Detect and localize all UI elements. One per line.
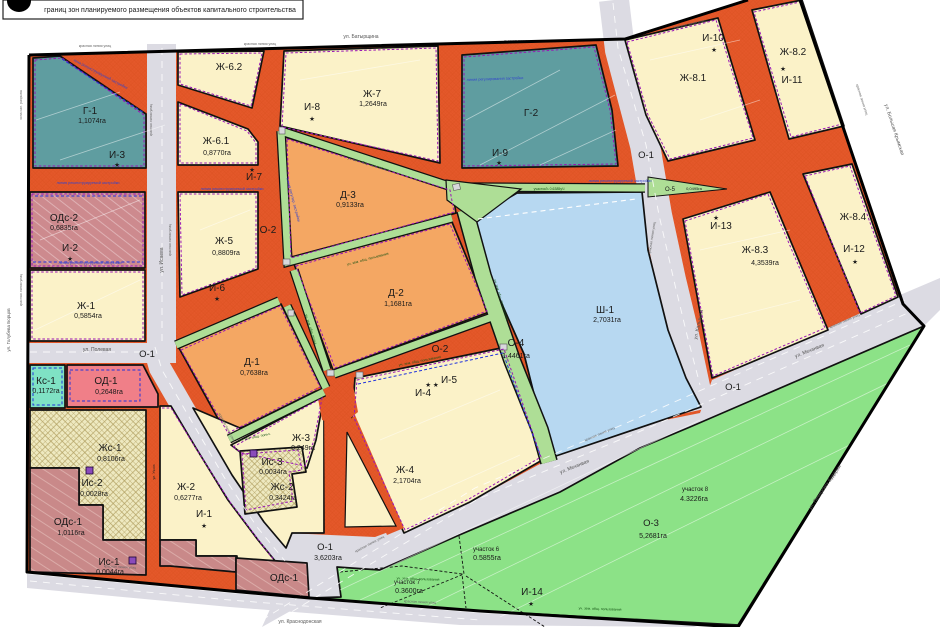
svg-text:И-1: И-1 [196, 509, 213, 520]
svg-text:красная линия улиц: красная линия улиц [168, 224, 172, 256]
svg-text:2,1704га: 2,1704га [393, 478, 421, 485]
svg-text:Жс-2: Жс-2 [270, 482, 294, 493]
svg-text:1,1074га: 1,1074га [78, 118, 106, 125]
svg-text:Ж-8.4: Ж-8.4 [840, 212, 867, 223]
svg-text:3,6203га: 3,6203га [314, 555, 342, 562]
svg-text:линия реконструируемой застрой: линия реконструируемой застройки [56, 181, 119, 185]
svg-text:Ж-5: Ж-5 [215, 236, 234, 247]
svg-text:участок 7: участок 7 [394, 580, 421, 586]
svg-text:Жс-1: Жс-1 [98, 443, 122, 454]
svg-text:★: ★ [780, 65, 786, 73]
svg-text:И-5: И-5 [441, 375, 458, 386]
svg-text:красная линия улиц: красная линия улиц [244, 42, 276, 46]
svg-text:0,5854га: 0,5854га [74, 313, 102, 320]
svg-text:★: ★ [214, 295, 220, 303]
svg-text:0,249га: 0,249га [291, 445, 315, 452]
svg-text:★: ★ [201, 522, 207, 530]
svg-text:И-2: И-2 [62, 243, 79, 254]
svg-text:красная линия улиц: красная линия улиц [79, 44, 111, 48]
svg-text:границ зон планируемого размещ: границ зон планируемого размещения объек… [44, 6, 296, 14]
svg-text:Д-1: Д-1 [244, 357, 260, 368]
svg-text:1,1681га: 1,1681га [384, 301, 412, 308]
svg-text:О-2: О-2 [260, 225, 277, 236]
svg-text:0,0028га: 0,0028га [80, 491, 108, 498]
svg-text:Ж-3: Ж-3 [292, 433, 311, 444]
svg-text:★: ★ [852, 258, 858, 266]
svg-text:И-6: И-6 [209, 283, 226, 294]
svg-text:участокЪ 0.6385уЧ: участокЪ 0.6385уЧ [534, 187, 566, 191]
svg-text:0.3600га: 0.3600га [395, 588, 423, 595]
svg-text:Ж-2: Ж-2 [177, 482, 196, 493]
svg-text:0,8106га: 0,8106га [97, 456, 125, 463]
svg-text:линия реконструируемой застрой: линия реконструируемой застройки [588, 179, 651, 183]
svg-text:★: ★ [249, 166, 255, 174]
svg-text:0,6835га: 0,6835га [50, 225, 78, 232]
svg-text:ул. Полевая: ул. Полевая [83, 347, 111, 353]
svg-text:О-4: О-4 [508, 338, 525, 349]
svg-text:0,8809га: 0,8809га [212, 250, 240, 257]
svg-text:Ш-1: Ш-1 [596, 305, 614, 316]
svg-text:★: ★ [713, 214, 719, 222]
svg-text:0,8770га: 0,8770га [203, 150, 231, 157]
svg-text:И-12: И-12 [843, 244, 865, 255]
svg-text:5,2681га: 5,2681га [639, 533, 667, 540]
svg-text:2,7031га: 2,7031га [593, 317, 621, 324]
svg-text:Ис-2: Ис-2 [81, 478, 103, 489]
svg-text:0,1172га: 0,1172га [32, 388, 59, 395]
svg-text:ул. Исаева: ул. Исаева [159, 247, 165, 272]
svg-text:ОДс-2: ОДс-2 [50, 213, 79, 224]
svg-text:Ж-6.1: Ж-6.1 [203, 136, 230, 147]
svg-text:★ ★: ★ ★ [425, 381, 439, 389]
svg-text:★: ★ [528, 600, 534, 608]
svg-text:ОД-1: ОД-1 [94, 376, 118, 387]
svg-text:Ис-3: Ис-3 [261, 457, 283, 468]
svg-text:Кс-1: Кс-1 [36, 376, 56, 387]
svg-text:И-3: И-3 [109, 150, 126, 161]
svg-text:О-1: О-1 [725, 382, 741, 393]
svg-text:★: ★ [496, 159, 502, 167]
svg-text:4,3539га: 4,3539га [751, 260, 779, 267]
svg-text:0,0044га: 0,0044га [96, 569, 124, 576]
svg-text:0,3424га: 0,3424га [269, 495, 297, 502]
svg-text:линия реконструируемой застрой: линия реконструируемой застройки [200, 187, 263, 191]
svg-text:И-11: И-11 [782, 75, 803, 86]
svg-text:1,2649га: 1,2649га [359, 101, 387, 108]
svg-text:участок 8: участок 8 [682, 487, 709, 493]
svg-text:Ж-1: Ж-1 [77, 301, 96, 312]
svg-text:И-14: И-14 [521, 587, 543, 598]
svg-text:О-1: О-1 [638, 150, 654, 161]
svg-text:О-1: О-1 [317, 542, 333, 553]
svg-text:И-9: И-9 [492, 148, 509, 159]
svg-text:★: ★ [711, 46, 717, 54]
svg-text:ОДс-1: ОДс-1 [54, 517, 83, 528]
svg-text:★: ★ [114, 161, 120, 169]
svg-text:1,0116га: 1,0116га [57, 530, 84, 537]
svg-text:ул. Краснодонская: ул. Краснодонская [278, 619, 322, 625]
svg-text:Ж-8.1: Ж-8.1 [680, 73, 707, 84]
svg-text:Ж-8.3: Ж-8.3 [742, 245, 769, 256]
svg-text:0,0034га: 0,0034га [259, 469, 287, 476]
svg-text:ул. Батырщина: ул. Батырщина [343, 34, 378, 40]
svg-text:красная линия улиц: красная линия улиц [19, 274, 23, 306]
svg-text:И-4: И-4 [415, 388, 432, 399]
svg-text:О-3: О-3 [643, 518, 659, 529]
svg-text:участок 6: участок 6 [473, 547, 500, 553]
svg-text:О-1: О-1 [139, 349, 155, 360]
svg-text:Ж-4: Ж-4 [396, 465, 415, 476]
svg-text:0,7638га: 0,7638га [240, 370, 268, 377]
svg-text:★: ★ [309, 115, 315, 123]
svg-text:О-2: О-2 [432, 344, 449, 355]
svg-text:0,6277га: 0,6277га [174, 495, 202, 502]
svg-text:ул. Голубева Борцов: ул. Голубева Борцов [6, 308, 11, 352]
svg-text:Г-1: Г-1 [83, 106, 98, 117]
svg-text:ул. Учхоз: ул. Учхоз [152, 464, 156, 479]
svg-text:★: ★ [67, 255, 73, 263]
svg-text:И-10: И-10 [702, 33, 724, 44]
svg-text:Ж-8.2: Ж-8.2 [780, 47, 807, 58]
svg-text:0,2648га: 0,2648га [95, 389, 123, 396]
svg-text:Д-2: Д-2 [388, 288, 404, 299]
svg-text:Ж-7: Ж-7 [363, 89, 382, 100]
svg-text:Ж-6.2: Ж-6.2 [216, 62, 243, 73]
svg-text:И-13: И-13 [710, 221, 732, 232]
svg-text:Г-2: Г-2 [524, 108, 539, 119]
svg-text:1,4461га: 1,4461га [502, 353, 530, 360]
svg-text:0,9133га: 0,9133га [336, 202, 364, 209]
svg-text:4.3226га: 4.3226га [680, 496, 708, 503]
svg-text:зона сан. разрыва: зона сан. разрыва [19, 90, 23, 120]
svg-text:О-5: О-5 [665, 187, 676, 193]
svg-text:красная линия улиц: красная линия улиц [149, 104, 153, 136]
svg-text:Д-3: Д-3 [340, 190, 356, 201]
svg-text:И-8: И-8 [304, 102, 321, 113]
svg-text:0.5855га: 0.5855га [473, 555, 501, 562]
svg-text:0,0495га: 0,0495га [686, 186, 703, 191]
svg-text:ОДс-1: ОДс-1 [270, 573, 299, 584]
svg-text:Ис-1: Ис-1 [98, 557, 120, 568]
